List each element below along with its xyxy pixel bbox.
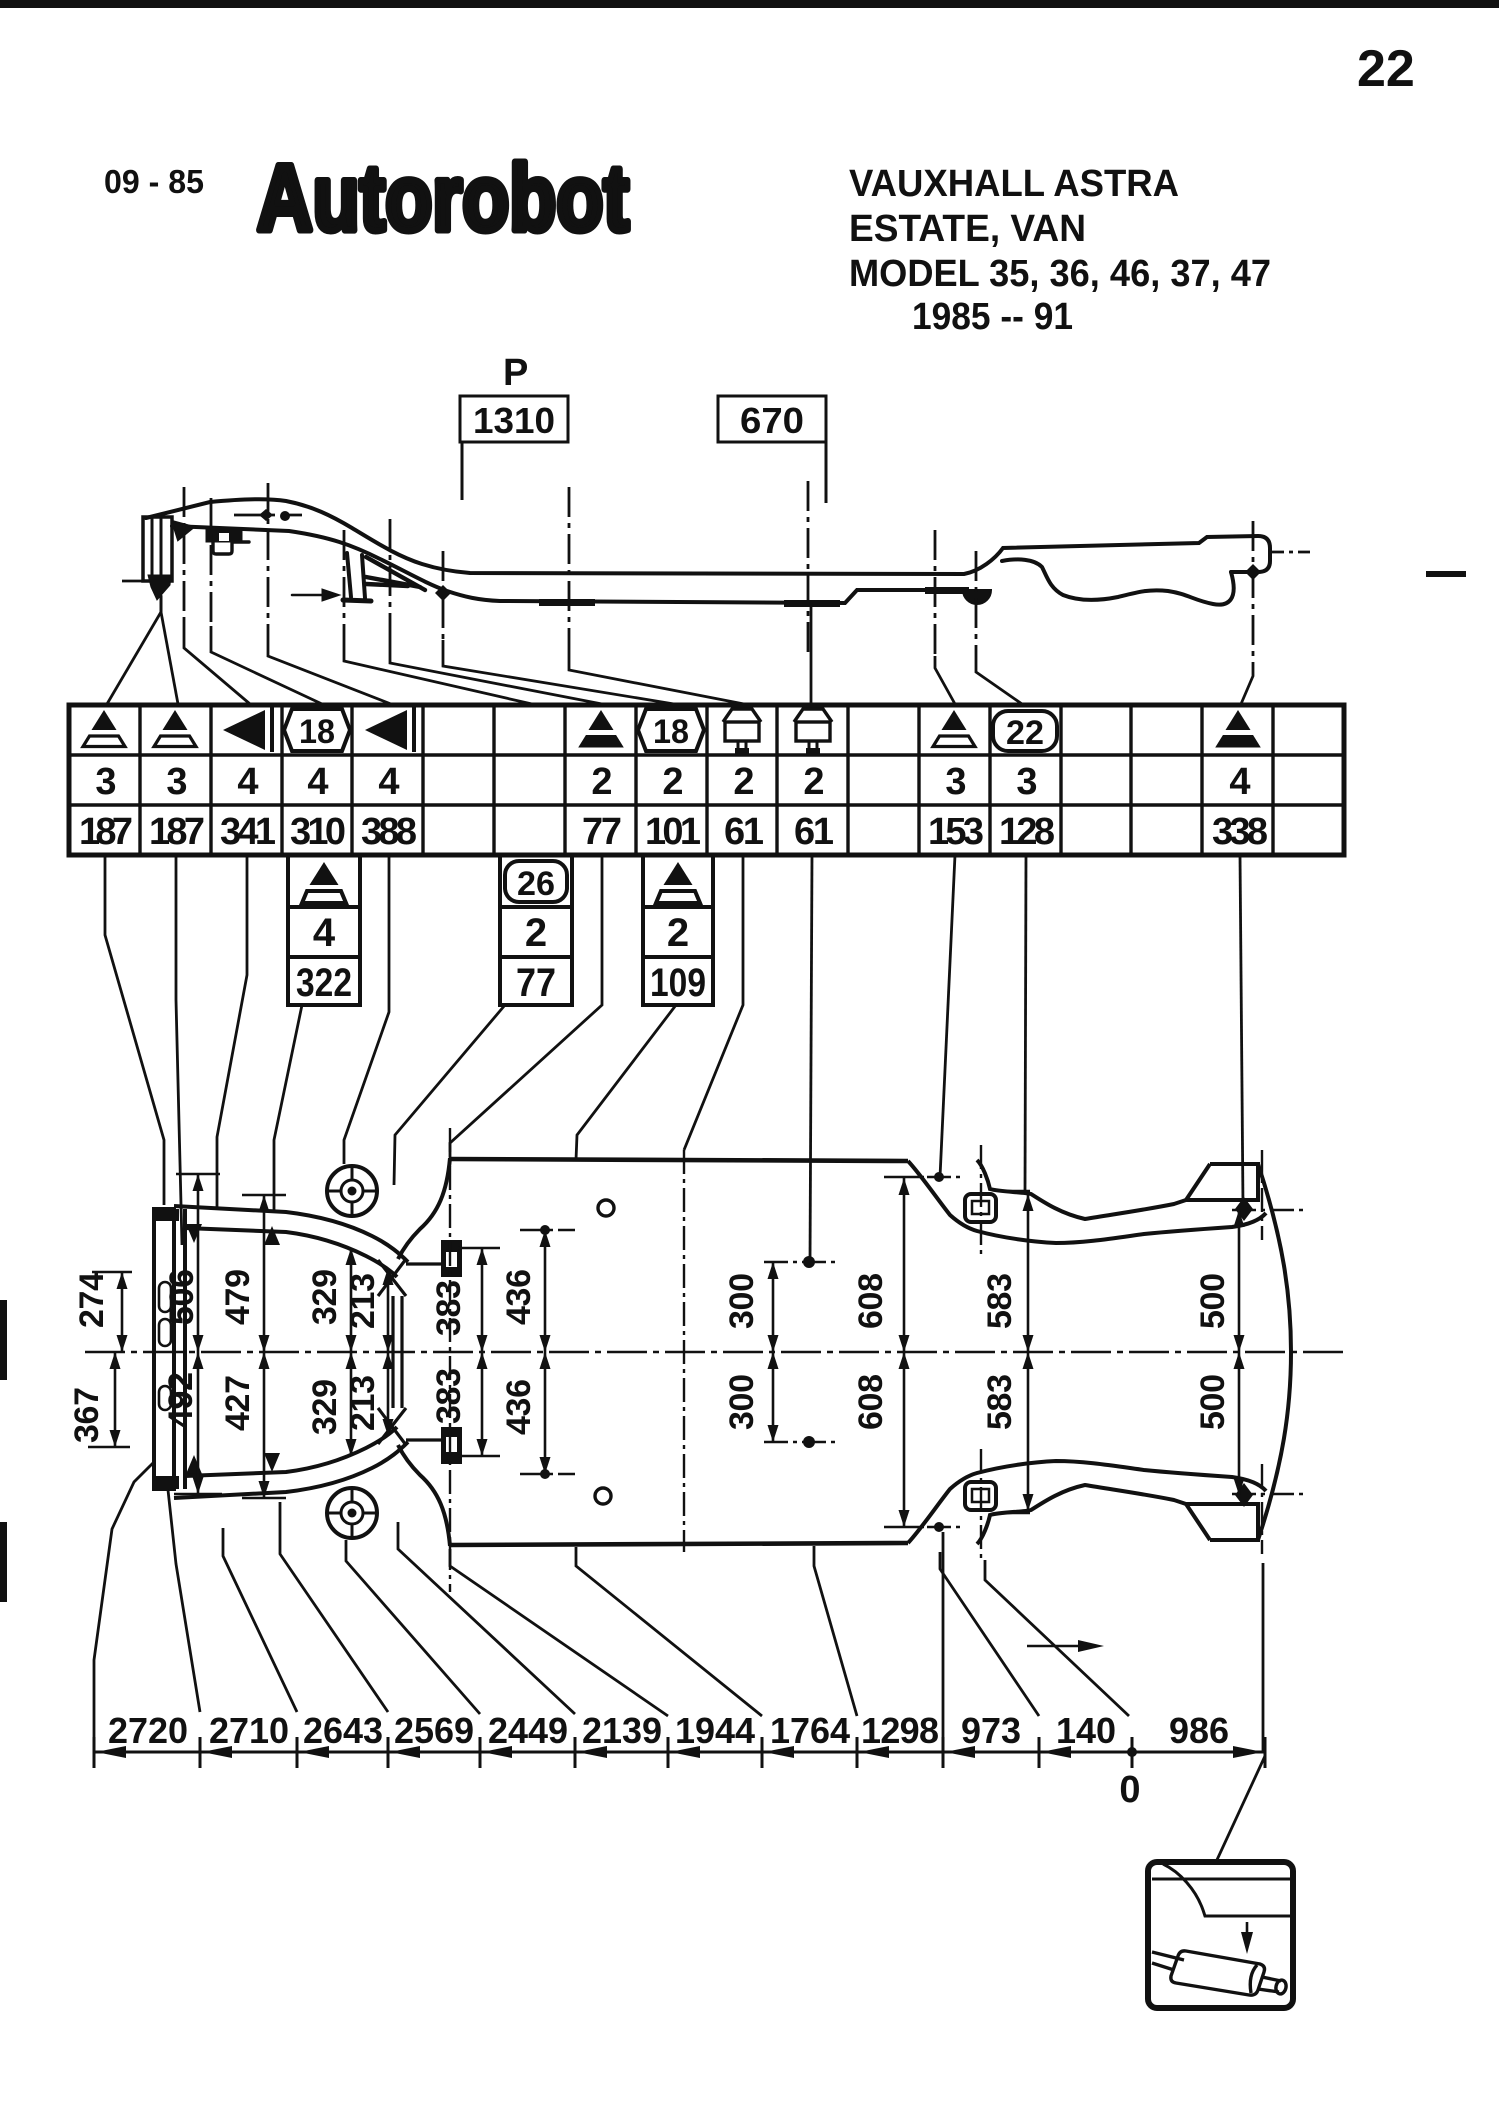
svg-text:22: 22 [1006,714,1044,752]
svg-text:367: 367 [68,1387,106,1443]
svg-text:608: 608 [852,1273,890,1329]
svg-text:274: 274 [73,1272,111,1328]
svg-text:329: 329 [306,1269,344,1325]
svg-text:3: 3 [95,761,116,803]
svg-text:329: 329 [306,1379,344,1435]
svg-text:2: 2 [662,761,683,803]
svg-text:310: 310 [290,811,346,853]
svg-text:213: 213 [344,1273,382,1329]
svg-text:583: 583 [981,1374,1019,1430]
svg-text:140: 140 [1056,1710,1116,1751]
svg-text:ESTATE, VAN: ESTATE, VAN [849,208,1086,250]
svg-text:128: 128 [999,811,1055,853]
svg-text:300: 300 [723,1374,761,1430]
svg-text:Autorobot: Autorobot [257,145,629,250]
svg-text:383: 383 [430,1280,468,1336]
svg-text:2643: 2643 [303,1710,383,1751]
svg-text:436: 436 [500,1269,538,1325]
svg-text:608: 608 [852,1374,890,1430]
svg-text:4: 4 [307,761,328,803]
svg-text:4: 4 [378,761,399,803]
svg-text:2: 2 [733,761,754,803]
svg-text:MODEL 35, 36, 46, 37, 47: MODEL 35, 36, 46, 37, 47 [849,253,1271,295]
svg-text:77: 77 [516,961,556,1005]
svg-text:322: 322 [296,961,352,1005]
svg-text:388: 388 [361,811,417,853]
svg-text:2449: 2449 [488,1710,568,1751]
svg-text:3: 3 [1016,761,1037,803]
svg-text:986: 986 [1169,1710,1229,1751]
svg-text:506: 506 [163,1269,201,1325]
svg-text:109: 109 [650,961,706,1005]
svg-text:1310: 1310 [473,400,555,441]
svg-text:500: 500 [1194,1374,1232,1430]
svg-text:670: 670 [740,400,804,441]
svg-text:2: 2 [591,761,612,803]
svg-text:18: 18 [653,713,689,751]
svg-text:P: P [503,352,528,394]
svg-text:427: 427 [219,1375,257,1431]
svg-text:18: 18 [299,713,335,751]
svg-text:61: 61 [794,811,834,853]
svg-text:436: 436 [500,1379,538,1435]
svg-text:101: 101 [645,811,701,853]
svg-text:2: 2 [525,911,547,955]
svg-text:479: 479 [219,1269,257,1325]
svg-text:3: 3 [166,761,187,803]
svg-text:338: 338 [1212,811,1268,853]
svg-text:583: 583 [981,1273,1019,1329]
svg-text:1764: 1764 [770,1710,850,1751]
svg-text:2710: 2710 [209,1710,289,1751]
svg-text:3: 3 [945,761,966,803]
svg-text:09 - 85: 09 - 85 [104,163,204,200]
svg-text:500: 500 [1194,1273,1232,1329]
svg-text:2139: 2139 [582,1710,662,1751]
svg-text:2569: 2569 [394,1710,474,1751]
svg-text:4: 4 [237,761,258,803]
svg-text:341: 341 [220,811,276,853]
svg-text:2720: 2720 [108,1710,188,1751]
svg-text:2: 2 [667,911,689,955]
svg-text:973: 973 [961,1710,1021,1751]
svg-text:300: 300 [723,1273,761,1329]
svg-text:187: 187 [149,811,205,853]
svg-text:187: 187 [79,811,133,853]
svg-text:2: 2 [803,761,824,803]
svg-text:77: 77 [582,811,622,853]
svg-text:61: 61 [724,811,764,853]
svg-text:492: 492 [162,1372,200,1428]
svg-text:1944: 1944 [675,1710,755,1751]
svg-text:1298: 1298 [861,1710,939,1751]
svg-text:VAUXHALL ASTRA: VAUXHALL ASTRA [849,163,1179,205]
svg-text:153: 153 [928,811,984,853]
svg-text:213: 213 [344,1375,382,1431]
svg-text:26: 26 [517,865,555,903]
svg-text:4: 4 [313,911,336,955]
svg-text:4: 4 [1229,761,1250,803]
svg-text:22: 22 [1357,40,1415,98]
svg-text:383: 383 [430,1368,468,1424]
svg-text:1985 -- 91: 1985 -- 91 [912,296,1073,338]
svg-text:0: 0 [1119,1769,1140,1811]
